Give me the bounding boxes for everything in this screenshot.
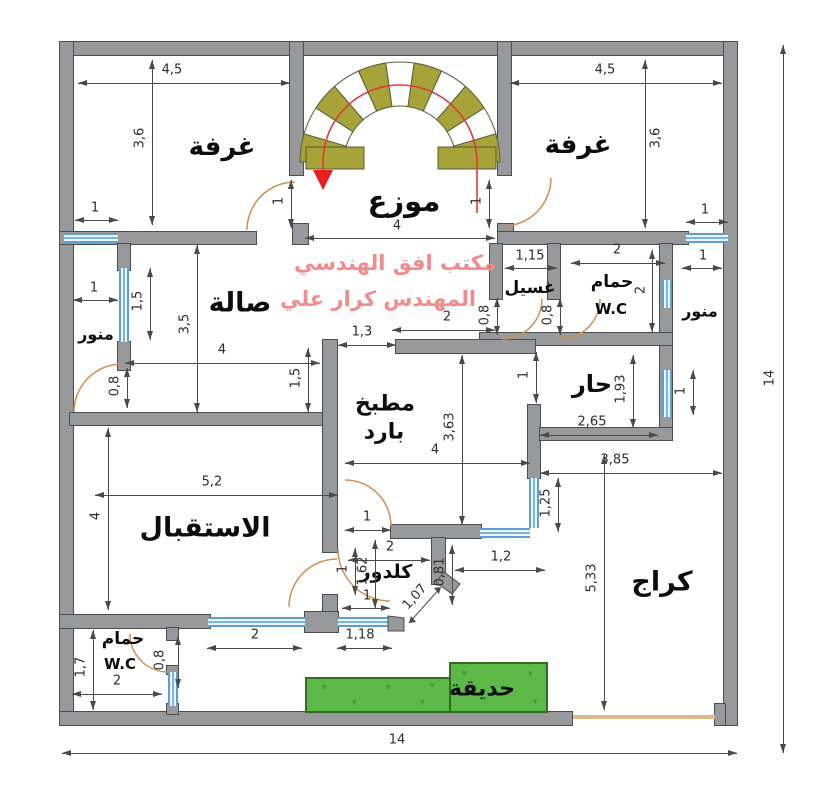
dim-kitchen-window [558, 478, 559, 532]
dim-label: 2 [443, 310, 451, 325]
watermark-line1: مكتب افق الهندسي [294, 251, 496, 275]
dim-label: 1 [363, 510, 371, 525]
dim-label: 0,8 [153, 650, 168, 671]
room-label-bath1-wc: W.C [595, 300, 627, 318]
dim-bl-width [78, 83, 290, 84]
dim-label: 4 [218, 343, 226, 358]
dim-reception-window [207, 648, 302, 649]
dim-label: 4,5 [595, 63, 616, 78]
room-label-lightwell-left: منور [78, 325, 114, 344]
stair-direction-arrow [313, 170, 333, 190]
stair-step [438, 147, 496, 169]
dim-label: 1 [517, 371, 532, 379]
dim-wc-height [93, 630, 94, 710]
dim-label: 1,2 [491, 550, 512, 565]
dim-corridor-right [455, 570, 545, 571]
room-label-bedroom-right: غرفة [545, 130, 612, 160]
floor-plan: ▾ ▾ ▾ ▾ ▾ ▾ ▾ ▾ غرفة غرفة موزع صالة غسيل… [0, 0, 828, 790]
dim-kitchen-width [345, 463, 530, 464]
dim-hall-width [305, 238, 495, 239]
watermark-line2: المهندس كرار علي [280, 287, 476, 311]
dim-reception-height [108, 428, 109, 610]
dim-living-width [125, 363, 320, 364]
dim-br-height [645, 60, 646, 228]
dim-kitchen-right [536, 352, 537, 403]
dim-label: 3,6 [133, 128, 148, 149]
dim-label: 5,33 [585, 564, 600, 593]
room-label-hall: موزع [368, 184, 441, 218]
dim-kitchen-height [462, 355, 463, 525]
dim-br-width [510, 83, 722, 84]
dim-bl-door [291, 180, 292, 228]
dim-garage-height [604, 455, 605, 710]
dim-kitchen-door [345, 530, 391, 531]
dim-label: 1,93 [614, 375, 629, 404]
door-arc [289, 559, 337, 607]
dim-label: 5,2 [202, 475, 223, 490]
dim-label: 1,15 [516, 249, 545, 264]
dim-label: 1,18 [346, 628, 375, 643]
wall-diagonal [388, 616, 404, 631]
stair-step [306, 147, 364, 169]
room-label-bath1: حمام [591, 272, 634, 292]
room-label-garage: كراج [631, 567, 692, 598]
dim-label: 2 [251, 628, 259, 643]
dim-label: 2 [634, 286, 649, 294]
room-label-hot: حار [572, 370, 612, 398]
dim-br-window [686, 222, 728, 223]
dim-label: 2 [613, 243, 621, 258]
dim-lwl-window [150, 268, 151, 340]
dim-label: 14 [389, 733, 406, 748]
dim-label: 2 [386, 540, 394, 555]
dim-label: 3,5 [178, 314, 193, 335]
dim-label: 14 [763, 370, 778, 387]
dim-corridor-window [337, 648, 392, 649]
dim-label: 0,8 [478, 305, 493, 326]
room-label-kitchen-2: بارد [364, 420, 404, 445]
dim-total-height [783, 45, 784, 753]
dim-kitchen-top-opening [338, 345, 396, 346]
door-arc [503, 178, 551, 226]
dim-label: 0,8 [108, 376, 123, 397]
dim-label: 1 [363, 589, 371, 604]
dim-label: 2 [113, 674, 121, 689]
dim-lwr-gap [682, 268, 722, 269]
dim-label: 2,65 [578, 415, 607, 430]
dim-label: 1 [336, 565, 351, 573]
dim-label: 3,6 [649, 128, 664, 149]
dim-hot-width [540, 435, 658, 436]
dim-garage-width [540, 473, 722, 474]
dim-label: 1 [470, 197, 485, 205]
dim-hall-opening [392, 330, 495, 331]
dim-label: 1 [91, 201, 99, 216]
dim-corridor-r [452, 545, 453, 605]
dim-laundry-door [497, 298, 498, 335]
dim-label: 1,62 [356, 557, 371, 586]
dim-lwl-door [127, 368, 128, 408]
dim-living-height [197, 245, 198, 412]
room-label-garden: حديقة [449, 677, 515, 702]
dim-lwr-window2 [693, 370, 694, 415]
dim-label: 1 [701, 203, 709, 218]
room-label-living: صالة [209, 288, 272, 319]
room-label-laundry: غسيل [504, 278, 555, 298]
dim-label: 1,7 [74, 657, 89, 678]
dim-bath1-width [571, 263, 665, 264]
dim-label: 1 [272, 197, 287, 205]
dim-label: 3,63 [443, 413, 458, 442]
dim-label: 1,5 [289, 368, 304, 389]
dim-wc-width [72, 694, 162, 695]
dim-label: 1,25 [539, 489, 554, 518]
dim-hot-height [633, 355, 634, 428]
dim-reception-width [95, 495, 338, 496]
dim-laundry-width [505, 268, 557, 269]
dim-label: 4 [431, 443, 439, 458]
dim-label: 0,81 [433, 558, 448, 587]
dim-label: 1 [674, 387, 689, 395]
dim-label: 1 [699, 249, 707, 264]
dim-bl-height [152, 60, 153, 225]
room-label-kitchen-1: مطبخ [355, 392, 415, 417]
dim-label: 1,5 [131, 291, 146, 312]
room-label-reception: الاستقبال [140, 513, 271, 544]
dim-br-door [489, 180, 490, 228]
dim-label: 0,8 [541, 305, 556, 326]
dim-living-right [308, 348, 309, 412]
dim-label: 1,3 [352, 325, 373, 340]
dim-label: 4,5 [162, 63, 183, 78]
dim-label: 4 [393, 219, 401, 234]
room-label-bath2: حمام [102, 629, 145, 649]
dim-corridor-opening [342, 608, 390, 609]
room-label-bedroom-left: غرفة [189, 132, 256, 162]
dim-bath1-door [560, 298, 561, 335]
dim-label: 4 [89, 512, 104, 520]
room-label-lightwell-right: منور [682, 302, 718, 321]
dim-lwl-gap [73, 300, 118, 301]
dim-wc-door [178, 636, 179, 688]
dim-reception-door2 [375, 540, 376, 608]
dim-label: 1 [90, 281, 98, 296]
dim-total-width [62, 753, 737, 754]
door-arc [502, 299, 542, 339]
room-label-bath2-wc: W.C [104, 655, 136, 673]
dim-bath1-height [652, 250, 653, 332]
dim-bl-window [75, 220, 118, 221]
